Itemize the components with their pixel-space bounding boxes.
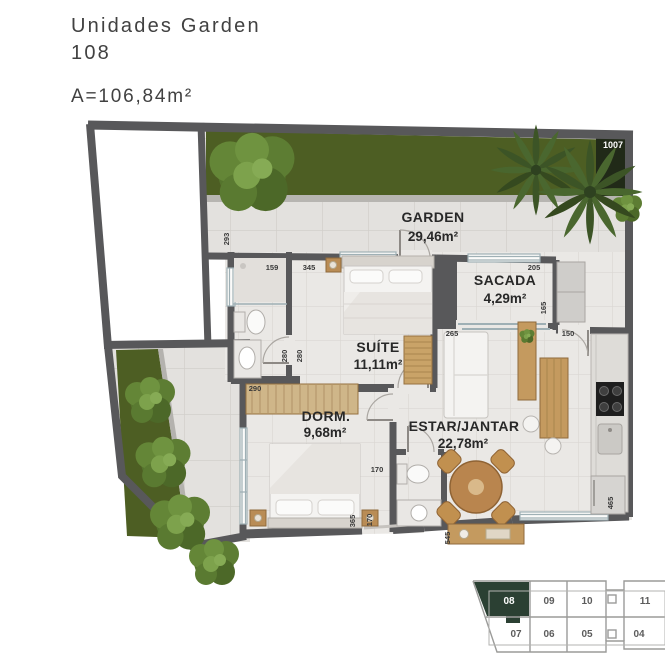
bush-icon	[136, 437, 191, 488]
unit-cell-10[interactable]: 10	[581, 596, 593, 607]
room-label-estar-jantar: ESTAR/JANTAR	[409, 418, 520, 434]
bush-icon	[189, 539, 239, 585]
dimension-label: 345	[303, 263, 316, 272]
dimension-label: 280	[295, 350, 304, 363]
dimension-label: 159	[266, 263, 279, 272]
room-label-garden: GARDEN	[401, 209, 464, 225]
unit-cell-08-highlight[interactable]	[474, 582, 529, 616]
wall-shaft-column	[431, 256, 457, 328]
external-unit-label: 1007	[603, 140, 623, 150]
unit-selector-map: 08 09 10 11 07 06 05 04	[473, 581, 665, 652]
bush-icon	[210, 133, 295, 211]
bush-icon	[125, 377, 175, 423]
unit-cell-08[interactable]: 08	[503, 596, 515, 607]
room-area-dorm: 9,68m²	[304, 425, 347, 440]
dimension-label: 170	[365, 514, 374, 527]
bush-icon	[150, 494, 210, 549]
floor-plan-drawing: GARDEN 29,46m² SACADA 4,29m² SUÍTE 11,11…	[0, 0, 665, 665]
room-label-suite: SUÍTE	[356, 339, 399, 355]
unit-cell-11[interactable]: 11	[640, 596, 651, 607]
dimension-label: 545	[443, 532, 452, 545]
room-label-sacada: SACADA	[474, 272, 536, 288]
dimension-label: 165	[539, 302, 548, 315]
unit-cell-06[interactable]: 06	[543, 629, 555, 640]
unit-cell-05[interactable]: 05	[581, 629, 593, 640]
room-area-suite: 11,11m²	[354, 357, 403, 372]
dimension-label: 205	[528, 263, 541, 272]
dimension-label: 170	[371, 465, 384, 474]
dimension-label: 465	[606, 497, 615, 510]
dimension-label: 290	[249, 384, 262, 393]
room-area-estar-jantar: 22,78m²	[438, 436, 489, 451]
dimension-label: 280	[280, 350, 289, 363]
floorplan-page: Unidades Garden 108 A=106,84m²	[0, 0, 665, 665]
unit-cell-04[interactable]: 04	[633, 629, 645, 640]
dimension-label: 293	[222, 233, 231, 246]
unit-cell-09[interactable]: 09	[543, 596, 555, 607]
room-area-sacada: 4,29m²	[484, 291, 527, 306]
room-area-garden: 29,46m²	[408, 229, 459, 244]
dimension-label: 265	[446, 329, 459, 338]
dimension-label: 365	[348, 515, 357, 528]
dimension-label: 150	[562, 329, 575, 338]
unit-cell-07[interactable]: 07	[510, 629, 522, 640]
room-label-dorm: DORM.	[302, 408, 351, 424]
